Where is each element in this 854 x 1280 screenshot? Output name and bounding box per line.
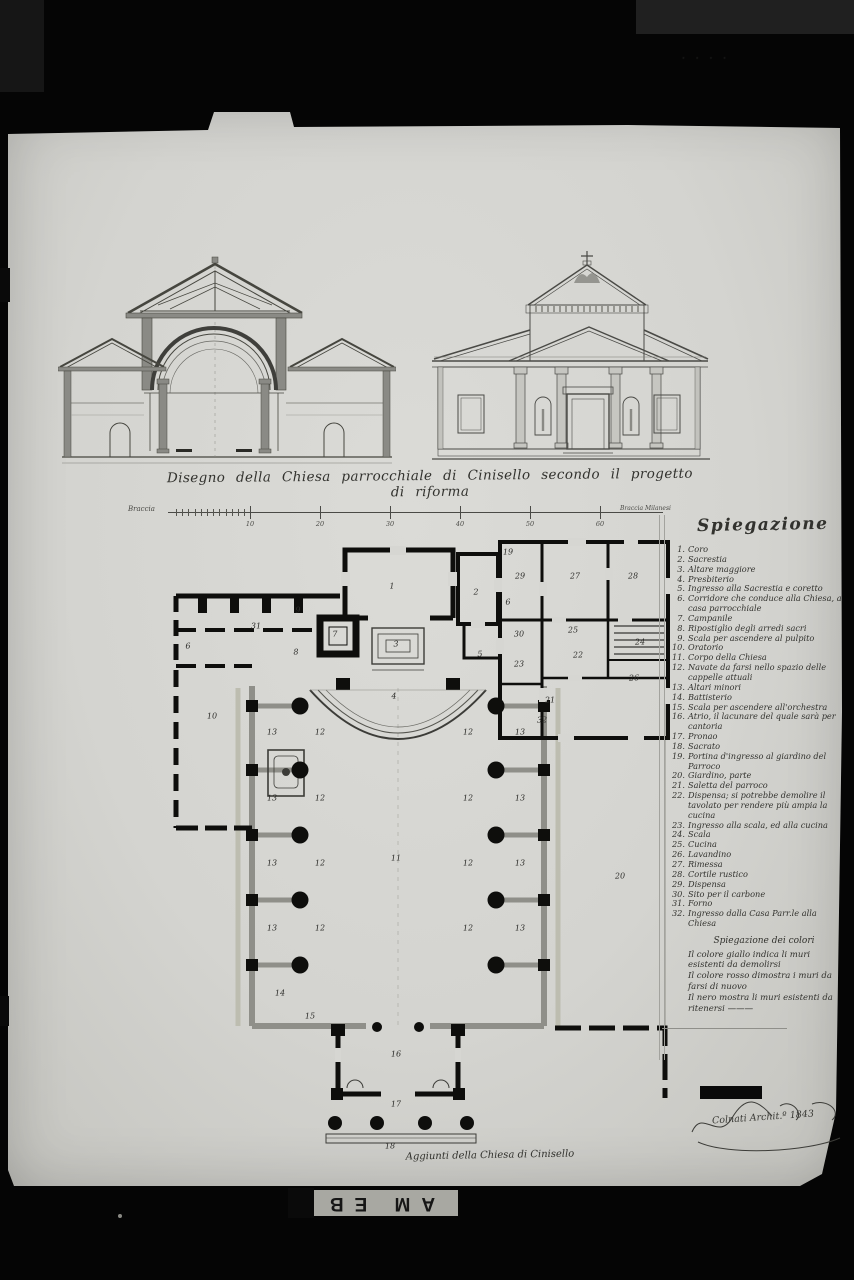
scale-tick-label: 50 xyxy=(520,520,540,528)
plan-room-number: 12 xyxy=(463,793,473,802)
color-legend-entry: Il nero mostra li muri esistenti da rite… xyxy=(688,993,840,1015)
plan-room-number: 26 xyxy=(629,673,639,682)
plan-room-number: 12 xyxy=(463,858,473,867)
legend-margin-line xyxy=(659,515,660,1060)
scale-tick-label: 30 xyxy=(380,520,400,528)
archive-label-notch xyxy=(288,1188,314,1218)
scale-minor-tick xyxy=(176,509,177,516)
scale-major-tick xyxy=(390,506,391,519)
small-speck xyxy=(118,1214,122,1218)
plan-room-number: 12 xyxy=(315,793,325,802)
plan-room-number: 13 xyxy=(267,793,277,802)
plan-room-number: 27 xyxy=(570,571,580,580)
plan-room-number: 3 xyxy=(393,639,398,648)
scale-major-tick xyxy=(460,506,461,519)
legend-item: 12.Navate da farsi nello spazio delle ca… xyxy=(670,663,842,683)
plan-room-number: 12 xyxy=(315,727,325,736)
plan-room-number: 17 xyxy=(391,1099,401,1108)
scale-minor-tick xyxy=(219,509,220,516)
faint-corner-marks: · · · · xyxy=(682,54,730,64)
plan-room-number: 21 xyxy=(545,695,555,704)
scale-minor-tick xyxy=(201,509,202,516)
legend-item: 19.Portina d'ingresso al giardino del Pa… xyxy=(670,752,842,772)
scale-major-tick xyxy=(530,506,531,519)
plan-room-number: 7 xyxy=(332,629,337,638)
photo-corner-shade-topleft xyxy=(0,0,44,92)
church-cross-section-drawing xyxy=(58,243,396,473)
scale-minor-tick xyxy=(188,509,189,516)
floor-plan-number-labels: 1234566789101112131213121312131213121312… xyxy=(168,538,673,1158)
legend-list: 1.Coro2.Sacrestia3.Altare maggiore4.Pres… xyxy=(670,545,842,929)
legend-item: 22.Dispensa; si potrebbe demolire il tav… xyxy=(670,791,842,821)
color-legend-underline xyxy=(662,1028,787,1029)
photograph-of-drawing: · · · · xyxy=(0,0,854,1280)
legend-item: 16.Atrio, il lacunare del quale sarà per… xyxy=(670,712,842,732)
plan-room-number: 19 xyxy=(503,547,513,556)
plan-room-number: 11 xyxy=(391,853,401,862)
plan-room-number: 15 xyxy=(305,1011,315,1020)
scale-minor-tick xyxy=(195,509,196,516)
scale-tick-label: 40 xyxy=(450,520,470,528)
plan-room-number: 5 xyxy=(477,649,482,658)
scale-tick-label: 10 xyxy=(240,520,260,528)
scale-minor-tick xyxy=(232,509,233,516)
color-legend: Spiegazione dei colori Il colore giallo … xyxy=(688,936,840,1015)
scale-major-tick xyxy=(600,506,601,519)
legend-item: 32.Ingresso dalla Casa Parr.le alla Chie… xyxy=(670,909,842,929)
plan-room-number: 13 xyxy=(267,858,277,867)
legend-heading: Spiegazione xyxy=(697,514,829,536)
plan-room-number: 28 xyxy=(628,571,638,580)
plan-room-number: 22 xyxy=(573,650,583,659)
scale-line xyxy=(168,512,663,513)
scale-minor-tick xyxy=(238,509,239,516)
plan-room-number: 25 xyxy=(568,625,578,634)
plan-room-number: 6 xyxy=(185,641,190,650)
plan-room-number: 13 xyxy=(515,727,525,736)
plan-room-number: 8 xyxy=(293,647,298,656)
scale-minor-tick xyxy=(226,509,227,516)
scale-minor-tick xyxy=(182,509,183,516)
scale-right-label: Braccia Milanesi xyxy=(620,505,671,512)
scale-bar: Braccia 102030405060 Braccia Milanesi xyxy=(128,502,673,532)
scale-tick-label: 20 xyxy=(310,520,330,528)
scale-major-tick xyxy=(320,506,321,519)
archive-label: AM EB xyxy=(296,1190,458,1216)
plan-room-number: 23 xyxy=(514,659,524,668)
plan-room-number: 30 xyxy=(514,629,524,638)
scale-minor-tick xyxy=(207,509,208,516)
plan-room-number: 13 xyxy=(267,923,277,932)
scale-major-tick xyxy=(250,506,251,519)
plan-room-number: 1 xyxy=(389,581,394,590)
photo-clamp-tab-2 xyxy=(0,996,9,1026)
legend-margin-line-2 xyxy=(664,515,665,1060)
plan-room-number: 10 xyxy=(207,711,217,720)
plan-room-number: 13 xyxy=(515,923,525,932)
plan-room-number: 13 xyxy=(515,793,525,802)
plan-room-number: 24 xyxy=(635,637,645,646)
plan-room-number: 12 xyxy=(463,923,473,932)
plan-room-number: 12 xyxy=(463,727,473,736)
plan-room-number: 9 xyxy=(295,605,300,614)
photo-corner-shade-topright xyxy=(636,0,854,34)
plan-room-number: 32 xyxy=(537,715,547,724)
plan-room-number: 4 xyxy=(391,691,396,700)
plan-room-number: 6 xyxy=(505,597,510,606)
plan-room-number: 13 xyxy=(515,858,525,867)
plan-room-number: 13 xyxy=(267,727,277,736)
plan-room-number: 16 xyxy=(391,1049,401,1058)
drawing-title: Disegno della Chiesa parrocchiale di Cin… xyxy=(165,466,695,503)
plan-room-number: 29 xyxy=(515,571,525,580)
scale-minor-tick xyxy=(244,509,245,516)
color-legend-heading: Spiegazione dei colori xyxy=(688,936,840,948)
plan-room-number: 14 xyxy=(275,988,285,997)
plan-room-number: 12 xyxy=(315,923,325,932)
plan-room-number: 20 xyxy=(615,871,625,880)
scale-minor-tick xyxy=(213,509,214,516)
plan-room-number: 31 xyxy=(251,621,261,630)
color-legend-entry: Il colore rosso dimostra i muri da farsi… xyxy=(688,971,840,993)
legend-item: 6.Corridore che conduce alla Chiesa, a c… xyxy=(670,594,842,614)
scale-tick-label: 60 xyxy=(590,520,610,528)
plan-room-number: 12 xyxy=(315,858,325,867)
plan-room-number: 18 xyxy=(385,1141,395,1150)
color-legend-entry: Il colore giallo indica li muri esistent… xyxy=(688,950,840,972)
scale-left-label: Braccia xyxy=(128,505,155,513)
plan-room-number: 2 xyxy=(473,587,478,596)
photo-clamp-tab xyxy=(0,268,10,302)
church-facade-drawing xyxy=(424,247,716,465)
